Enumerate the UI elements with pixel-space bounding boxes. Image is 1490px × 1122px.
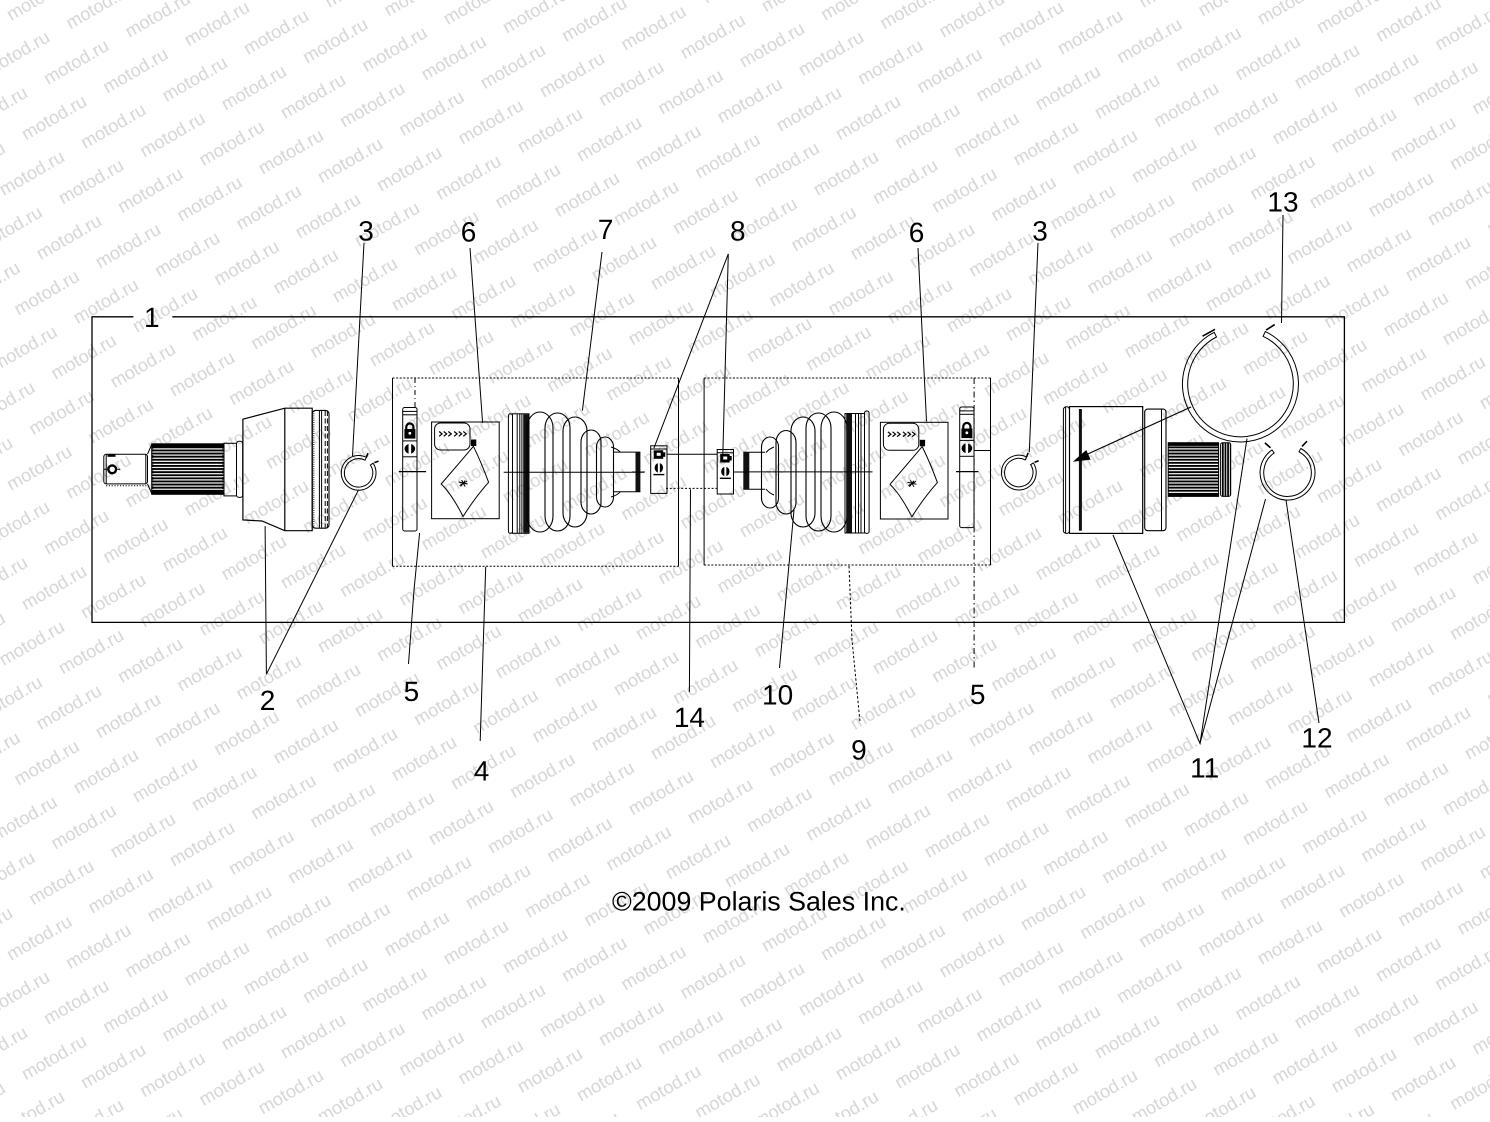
- svg-text:10: 10: [762, 680, 793, 711]
- svg-text:2: 2: [260, 685, 276, 716]
- svg-text:3: 3: [358, 216, 374, 247]
- svg-text:7: 7: [598, 214, 614, 245]
- svg-text:5: 5: [970, 679, 986, 710]
- svg-text:8: 8: [730, 216, 746, 247]
- svg-text:9: 9: [851, 734, 867, 765]
- svg-text:3: 3: [1032, 216, 1048, 247]
- svg-text:5: 5: [404, 676, 420, 707]
- svg-text:4: 4: [474, 756, 490, 787]
- svg-text:13: 13: [1267, 187, 1298, 218]
- svg-text:11: 11: [1190, 753, 1219, 784]
- svg-text:©2009 Polaris Sales Inc.: ©2009 Polaris Sales Inc.: [612, 887, 906, 917]
- svg-text:6: 6: [461, 217, 477, 248]
- svg-text:14: 14: [674, 702, 705, 733]
- svg-text:1: 1: [144, 302, 160, 333]
- svg-text:6: 6: [909, 217, 925, 248]
- svg-text:12: 12: [1301, 723, 1332, 754]
